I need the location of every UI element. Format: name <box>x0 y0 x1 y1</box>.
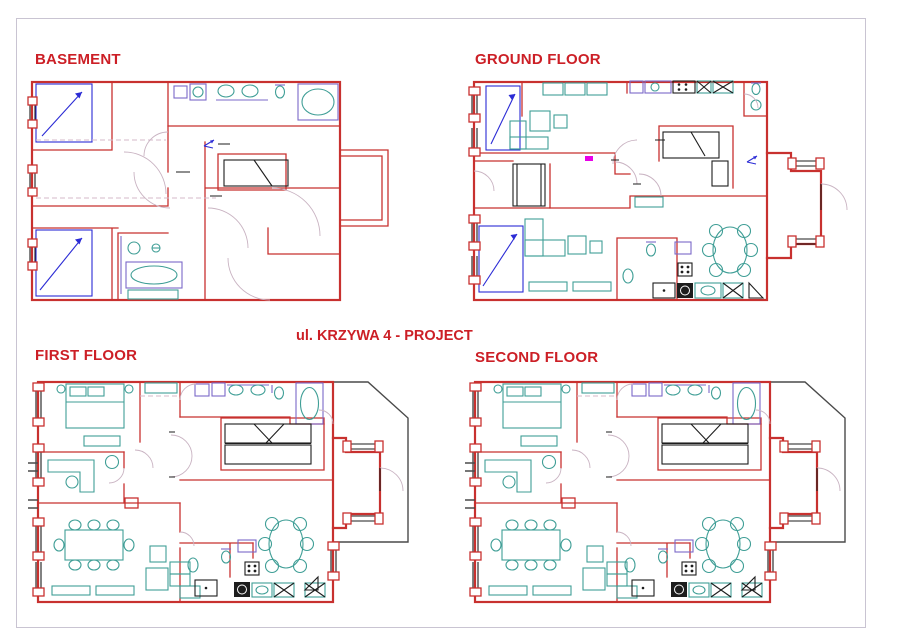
bathroom-top-right <box>744 83 761 110</box>
outer-walls <box>474 82 821 300</box>
second-floor-label: SECOND FLOOR <box>475 349 598 366</box>
marker-magenta <box>585 156 593 161</box>
round-dining <box>703 225 758 277</box>
hall-arcs <box>474 140 665 196</box>
stairs-bottom-left <box>479 226 523 292</box>
stairs-top-left <box>486 86 520 150</box>
lounge-top <box>510 83 607 149</box>
stairs-bottom-left <box>36 230 92 296</box>
kitchen-bottom <box>653 283 763 298</box>
bathroom-bottom <box>121 236 182 299</box>
project-title: ul. KRZYWA 4 - PROJECT <box>296 328 473 344</box>
bathroom-top <box>174 84 338 120</box>
first-floorplan <box>28 372 428 628</box>
stairs-left-straight <box>513 164 545 206</box>
stairs-top-left <box>36 84 92 142</box>
basement-floorplan <box>28 76 393 308</box>
ground-floor-label: GROUND FLOOR <box>475 51 601 68</box>
bathroom-bottom <box>623 242 692 283</box>
stairs-center <box>218 154 288 190</box>
second-floorplan <box>465 372 865 628</box>
basement-label: BASEMENT <box>35 51 121 68</box>
floorplan-sheet: { "title": { "text": "ul. KRZYWA 4 - PRO… <box>0 0 900 636</box>
bay <box>747 156 847 247</box>
lounge-bottom <box>525 219 611 291</box>
door-arcs <box>36 132 320 300</box>
outer-walls <box>32 82 388 300</box>
ground-floorplan <box>465 76 865 308</box>
first-floor-label: FIRST FLOOR <box>35 347 137 364</box>
radiator-hatch <box>635 197 663 207</box>
interior-walls <box>474 82 767 300</box>
interior-walls <box>32 82 340 300</box>
stairs-center <box>663 132 728 186</box>
